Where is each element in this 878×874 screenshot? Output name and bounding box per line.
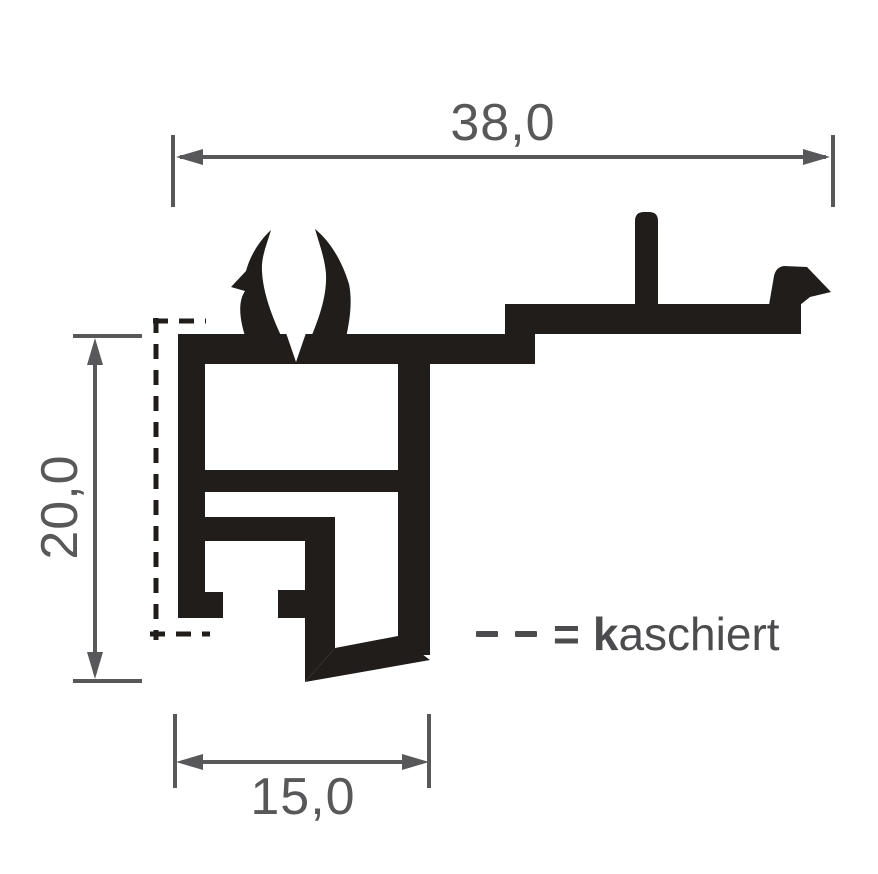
dimension-label-left-height: 20,0 bbox=[33, 397, 87, 617]
arrowhead-bottom-right bbox=[402, 754, 429, 770]
profile-fin-left bbox=[231, 230, 284, 342]
profile-hook bbox=[769, 266, 831, 312]
profile-right-wall bbox=[398, 360, 430, 655]
profile-divider bbox=[205, 470, 430, 492]
legend-dash-icon bbox=[515, 631, 537, 637]
technical-drawing: 38,0 20,0 15,0 = kaschiert bbox=[0, 0, 878, 874]
legend-term: kaschiert bbox=[593, 607, 780, 661]
profile-fin-right bbox=[309, 229, 351, 342]
arrowhead-bottom-left bbox=[176, 754, 203, 770]
profile-left-wall bbox=[178, 334, 205, 618]
arrowhead-left-bottom bbox=[87, 652, 103, 679]
arrowhead-top-right bbox=[803, 149, 830, 165]
arrowhead-top-left bbox=[176, 149, 203, 165]
legend-term-bold-prefix: k bbox=[593, 608, 619, 660]
legend-kaschiert: = kaschiert bbox=[476, 607, 780, 661]
legend-term-rest: aschiert bbox=[618, 608, 779, 660]
profile-centre-foot bbox=[278, 590, 307, 618]
dimension-label-bottom-width: 15,0 bbox=[203, 770, 403, 824]
arrowhead-left-top bbox=[87, 338, 103, 365]
legend-dash-icon bbox=[476, 631, 498, 637]
profile-top-flange bbox=[178, 334, 535, 364]
legend-equals-sign: = bbox=[553, 607, 580, 661]
profile-left-foot bbox=[178, 592, 223, 618]
profile-stub bbox=[635, 212, 658, 310]
dimension-label-top-width: 38,0 bbox=[403, 96, 603, 150]
